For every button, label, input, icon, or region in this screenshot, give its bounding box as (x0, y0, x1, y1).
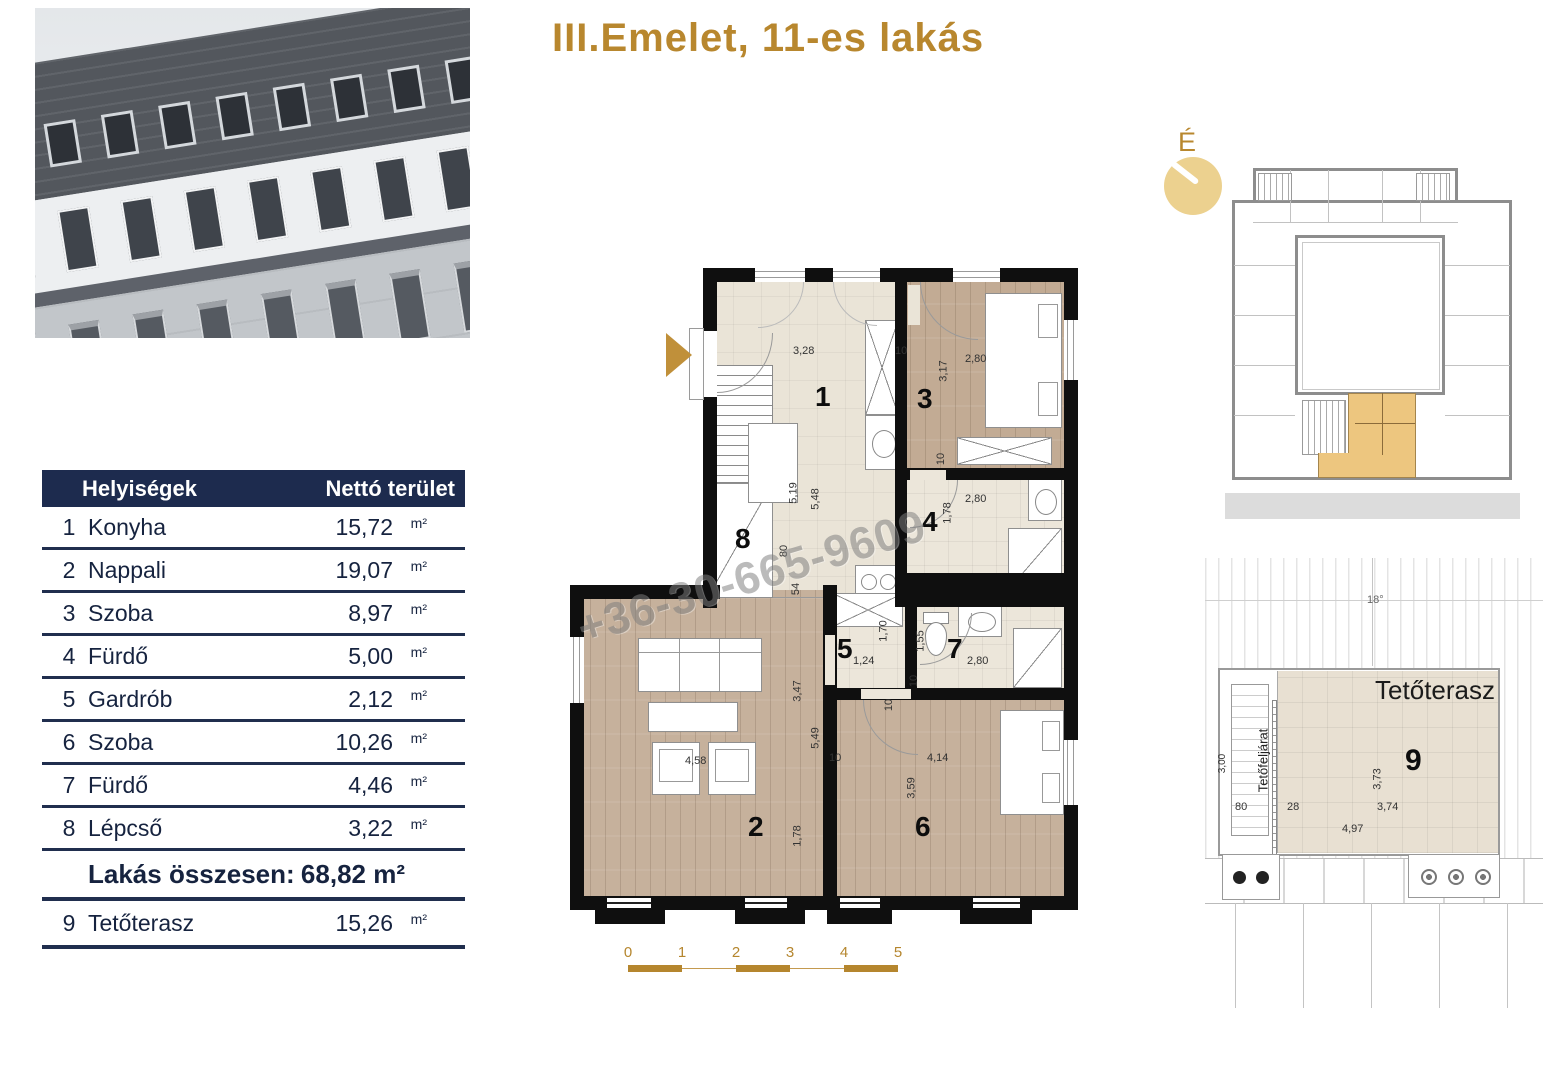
row-num: 2 (58, 550, 80, 590)
dim: 10 (829, 752, 841, 764)
table-row: 4Fürdő5,00m² (42, 636, 465, 679)
window-right-1 (1064, 320, 1078, 380)
sofa (638, 638, 762, 692)
dim: 4,97 (1342, 823, 1363, 835)
dim: 3,47 (792, 680, 804, 701)
dim: 5,48 (810, 488, 822, 509)
table-header: Helyiségek Nettó terület (42, 470, 465, 507)
row-name: Szoba (88, 593, 153, 633)
dim: 10 (895, 345, 907, 357)
row-value: 5,00 (293, 636, 393, 676)
stairs-icon (1302, 400, 1346, 455)
wardrobe-room5 (833, 593, 903, 627)
table-row: 1Konyha15,72m² (42, 507, 465, 550)
scale-tick: 5 (894, 944, 902, 961)
site-plan: É (1150, 125, 1543, 525)
roof-centerline (1372, 558, 1373, 666)
scale-segment (628, 965, 682, 972)
wall-band-mid (903, 573, 1064, 607)
building-photo (35, 8, 470, 338)
window-room3 (953, 268, 1000, 282)
total-value: 68,82 m² (301, 851, 405, 897)
row-name: Gardrób (88, 679, 172, 719)
wall-room2-right (823, 585, 837, 910)
col-area: Nettó terület (325, 470, 455, 507)
entry-arrow-icon (666, 333, 692, 377)
scale-segment (736, 965, 790, 972)
bed-room3 (985, 293, 1062, 428)
dim: 3,00 (1217, 754, 1228, 773)
dim: 10 (883, 699, 895, 711)
compass-needle (1171, 161, 1200, 185)
room-number-7: 7 (947, 635, 963, 663)
entry-door-gap (704, 331, 717, 397)
kitchen-sink-unit (865, 415, 899, 470)
armchair-2 (708, 742, 756, 795)
dim: 3,17 (938, 360, 950, 381)
building-photo-perspective (35, 8, 470, 338)
scale-segment (682, 968, 736, 969)
sill-1 (595, 910, 665, 924)
kitchen-tall-unit (865, 320, 899, 415)
row-value: 4,46 (293, 765, 393, 805)
shower-room7 (1013, 628, 1062, 688)
window-bottom-4 (973, 898, 1020, 908)
bed-room6 (1000, 710, 1064, 815)
stairs-icon (1258, 173, 1292, 201)
dim: 1,24 (853, 655, 874, 667)
room-number-1: 1 (815, 383, 831, 411)
room-number-3: 3 (917, 385, 933, 413)
scale-bar: 0 1 2 3 4 5 (628, 944, 902, 984)
room-table: Helyiségek Nettó terület 1Konyha15,72m² … (42, 470, 465, 949)
terrace-plan: 18° Tetőfeljárat 3,00 80 Tetőterasz 9 3,… (1205, 558, 1543, 1010)
row-unit: m² (411, 675, 427, 715)
window-right-2 (1064, 740, 1078, 805)
table-row: 7Fürdő4,46m² (42, 765, 465, 808)
terrace-title: Tetőterasz (1345, 675, 1495, 706)
row-value: 2,12 (293, 679, 393, 719)
row-name: Fürdő (88, 636, 148, 676)
apartment-partition (1355, 423, 1415, 424)
row-num: 3 (58, 593, 80, 633)
armchair-1 (652, 742, 700, 795)
row-value: 10,26 (293, 722, 393, 762)
row-num: 1 (58, 507, 80, 547)
dim: 5,49 (810, 727, 822, 748)
dim: 10 (908, 675, 920, 687)
chimney-right (1408, 854, 1500, 898)
room-number-2: 2 (748, 813, 764, 841)
window-left-living (570, 637, 584, 703)
sill-2 (735, 910, 805, 924)
row-name: Szoba (88, 722, 153, 762)
door-gap-room5 (825, 635, 835, 685)
total-label: Lakás összesen: (88, 851, 295, 897)
dim: 3,73 (1372, 768, 1384, 789)
window-bottom-2 (745, 898, 787, 908)
apartment-partition (1382, 393, 1383, 455)
table-row-terrace: 9Tetőterasz15,26m² (42, 901, 465, 949)
floor-plan: M 1 (565, 265, 1080, 930)
row-value: 19,07 (293, 550, 393, 590)
row-name: Tetőterasz (88, 901, 194, 945)
dim: 5,19 (788, 482, 800, 503)
closet-room3 (957, 437, 1052, 465)
row-unit: m² (411, 761, 427, 801)
row-name: Lépcső (88, 808, 162, 848)
row-unit: m² (411, 632, 427, 672)
row-name: Konyha (88, 507, 166, 547)
dim: 4,58 (685, 755, 706, 767)
wall-left-upper (703, 268, 717, 608)
row-unit: m² (411, 804, 427, 844)
dim: 4,14 (927, 752, 948, 764)
row-name: Nappali (88, 550, 166, 590)
row-num: 6 (58, 722, 80, 762)
scale-tick: 1 (678, 944, 686, 961)
table-total-row: Lakás összesen: 68,82 m² (42, 851, 465, 901)
row-num: 8 (58, 808, 80, 848)
table-row: 8Lépcső3,22m² (42, 808, 465, 851)
table-row: 3Szoba8,97m² (42, 593, 465, 636)
table-row: 2Nappali19,07m² (42, 550, 465, 593)
scale-tick: 0 (624, 944, 632, 961)
window-bottom-3 (840, 898, 880, 908)
scale-segment (844, 965, 898, 972)
north-label: É (1178, 127, 1196, 158)
row-num: 9 (58, 901, 80, 945)
row-unit: m² (411, 503, 427, 543)
row-value: 15,26 (293, 901, 393, 945)
sidewalk (1225, 493, 1520, 519)
door-gap-room4 (910, 470, 946, 480)
terrace-rail (1272, 700, 1277, 860)
scale-tick: 4 (840, 944, 848, 961)
row-name: Fürdő (88, 765, 148, 805)
dim: 1,55 (915, 630, 927, 651)
row-num: 5 (58, 679, 80, 719)
page-title: III.Emelet, 11-es lakás (552, 16, 984, 61)
dim: 2,80 (965, 353, 986, 365)
roof-angle: 18° (1367, 594, 1384, 606)
room-number-5: 5 (837, 635, 853, 663)
dim: 2,80 (965, 493, 986, 505)
dim: 3,59 (906, 777, 918, 798)
dim: 80 (1235, 801, 1247, 813)
scale-segment (790, 968, 844, 969)
apartment-highlight-lower (1318, 453, 1416, 478)
room-number-6: 6 (915, 813, 931, 841)
dim: 3,74 (1377, 801, 1398, 813)
row-value: 15,72 (293, 507, 393, 547)
window-kitchen-2 (833, 268, 880, 282)
row-unit: m² (411, 897, 427, 941)
row-num: 4 (58, 636, 80, 676)
dim: 2,80 (967, 655, 988, 667)
door-gap-room3 (908, 285, 920, 325)
row-unit: m² (411, 718, 427, 758)
sill-3 (827, 910, 892, 924)
coffee-table (648, 702, 738, 732)
scale-tick: 2 (732, 944, 740, 961)
dim: 3,28 (793, 345, 814, 357)
wall-room56 (823, 688, 1064, 700)
dim: 10 (935, 453, 947, 465)
compass-icon (1164, 157, 1222, 215)
stair-label: Tetőfeljárat (1255, 729, 1270, 793)
row-unit: m² (411, 589, 427, 629)
dim: 1,70 (878, 620, 890, 641)
row-value: 3,22 (293, 808, 393, 848)
sill-4 (960, 910, 1032, 924)
window-bottom-1 (607, 898, 651, 908)
row-unit: m² (411, 546, 427, 586)
sink-room4 (1028, 479, 1062, 521)
window-kitchen-1 (755, 268, 805, 282)
dim: 28 (1287, 801, 1299, 813)
table-row: 5Gardrób2,12m² (42, 679, 465, 722)
courtyard-inner-line (1302, 242, 1440, 390)
row-num: 7 (58, 765, 80, 805)
row-value: 8,97 (293, 593, 393, 633)
dim: 1,78 (942, 502, 954, 523)
scale-tick: 3 (786, 944, 794, 961)
table-row: 6Szoba10,26m² (42, 722, 465, 765)
chimney-left (1222, 854, 1280, 900)
door-gap-room6 (861, 689, 911, 699)
room-number-8: 8 (735, 525, 751, 553)
stairs-icon (1416, 173, 1450, 201)
dim: 1,78 (792, 825, 804, 846)
col-rooms: Helyiségek (82, 470, 197, 507)
room-number-9: 9 (1405, 746, 1422, 776)
